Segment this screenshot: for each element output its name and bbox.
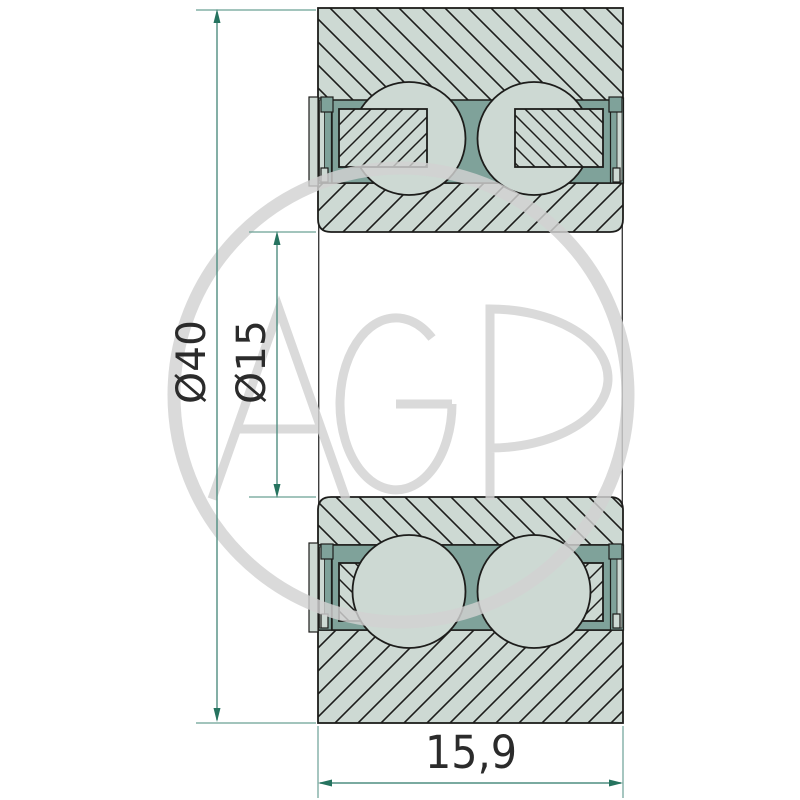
seal-bottom-left [309, 543, 333, 632]
ball-bottom-left [353, 535, 466, 648]
seal-top-right [609, 97, 624, 183]
arrow-down-icon [214, 708, 221, 722]
arrow-up-icon [214, 9, 221, 23]
inner-ring-top [318, 183, 623, 232]
drawing-canvas: Ø40 Ø15 15,9 [0, 0, 800, 800]
watermark-letter-G [340, 318, 452, 490]
outer-ring-bottom [318, 630, 623, 723]
arrow-down-icon [274, 484, 281, 498]
arrow-left-icon [318, 780, 332, 787]
outer-diameter-label: Ø40 [169, 320, 215, 404]
bore-diameter-label: Ø15 [229, 320, 275, 404]
cage-section-top-right [515, 109, 603, 167]
bearing-top-section [309, 8, 624, 232]
cage-section-top-left [339, 109, 427, 167]
arrow-up-icon [274, 231, 281, 245]
outer-ring-top [318, 8, 623, 101]
seal-top-left [309, 97, 333, 186]
watermark-letter-P [490, 309, 608, 500]
seal-bottom-right [609, 544, 624, 630]
width-label: 15,9 [425, 726, 517, 779]
bearing-technical-drawing: Ø40 Ø15 15,9 [0, 0, 800, 800]
arrow-right-icon [609, 780, 623, 787]
